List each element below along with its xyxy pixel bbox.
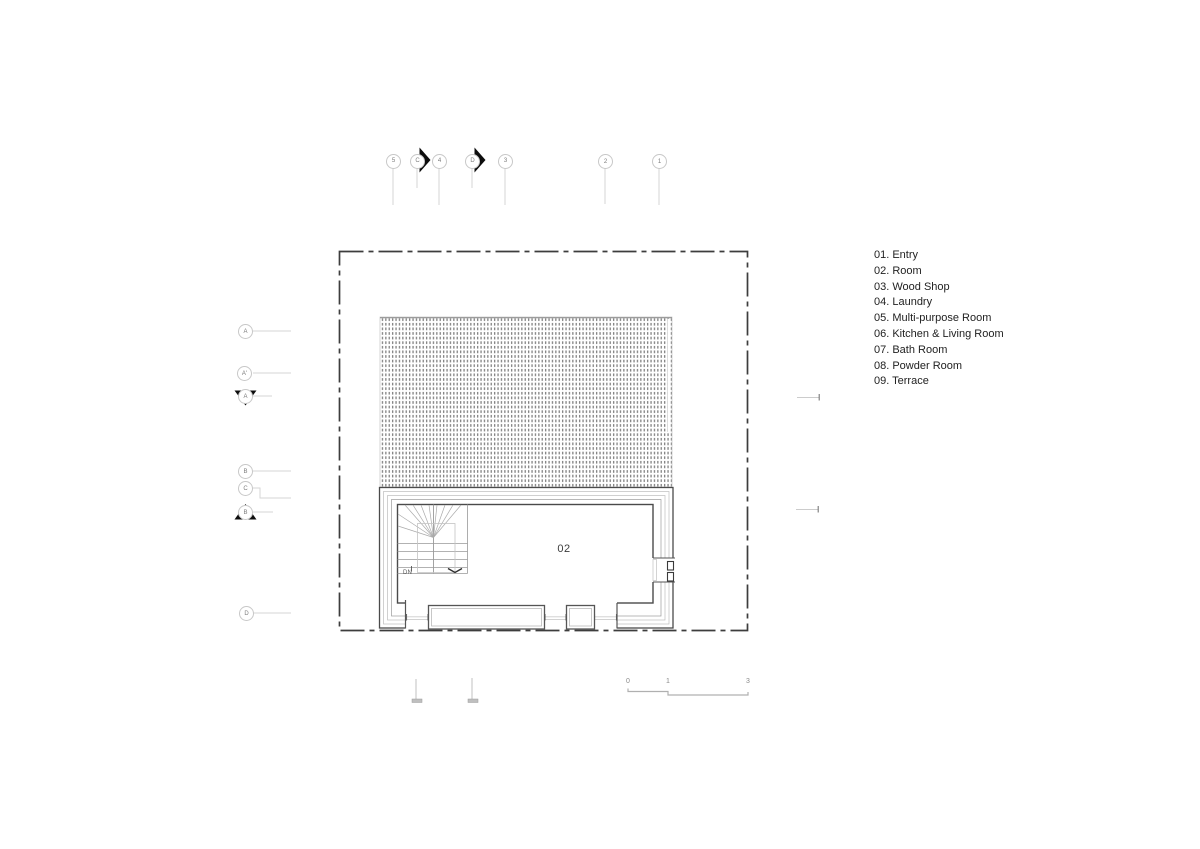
door-jamb-block — [668, 573, 674, 582]
scale-label-0: 0 — [623, 678, 633, 685]
grid-bubble-a-prime: A' — [237, 366, 252, 381]
grid-tails-left — [253, 331, 291, 613]
scale-bar-line — [628, 689, 748, 696]
grid-bubble-c: C — [410, 154, 425, 169]
grid-bubble-2: 2 — [598, 154, 613, 169]
grid-bubble-label: A' — [242, 371, 247, 377]
grid-bubble-label: 2 — [604, 159, 607, 165]
legend-item: 04. Laundry — [874, 295, 1004, 311]
grid-bubble-1: 1 — [652, 154, 667, 169]
grid-bubble-3: 3 — [498, 154, 513, 169]
scale-label-3: 3 — [743, 678, 753, 685]
grid-bubble-d-left: D — [239, 606, 254, 621]
stair-down-label: DN — [403, 570, 412, 576]
room-number-label: 02 — [550, 543, 578, 555]
grid-bubble-b: B — [238, 464, 253, 479]
room-legend: 01. Entry 02. Room 03. Wood Shop 04. Lau… — [874, 248, 1004, 390]
legend-item: 02. Room — [874, 264, 1004, 280]
grid-bubble-5: 5 — [386, 154, 401, 169]
downspout-marks — [412, 678, 478, 703]
legend-item: 08. Powder Room — [874, 359, 1004, 375]
grid-bubble-label: C — [243, 486, 247, 492]
window-bay-small — [567, 606, 595, 630]
grid-bubble-label: B — [243, 469, 247, 475]
grid-bubble-a: A — [238, 324, 253, 339]
bottom-window-wall — [406, 597, 618, 630]
grid-bubble-label: D — [470, 158, 474, 164]
roof-hatch-area — [380, 317, 672, 487]
grid-bubble-c-left: C — [238, 481, 253, 496]
grid-bubble-label: A — [243, 394, 247, 400]
scale-label-1: 1 — [663, 678, 673, 685]
grid-bubble-label: 4 — [438, 158, 441, 164]
legend-item: 07. Bath Room — [874, 343, 1004, 359]
legend-item: 05. Multi-purpose Room — [874, 311, 1004, 327]
right-grid-marks — [796, 394, 819, 513]
grid-bubble-label: B — [243, 510, 247, 516]
grid-bubble-label: 3 — [504, 158, 507, 164]
grid-bubble-a-section: A — [238, 389, 253, 404]
legend-item: 01. Entry — [874, 248, 1004, 264]
door-jamb-block — [668, 562, 674, 571]
grid-bubble-label: 1 — [658, 159, 661, 165]
grid-bubble-label: 5 — [392, 158, 395, 164]
legend-item: 09. Terrace — [874, 374, 1004, 390]
grid-bubble-4: 4 — [432, 154, 447, 169]
grid-bubble-label: A — [243, 329, 247, 335]
grid-bubble-d: D — [465, 154, 480, 169]
floor-plan-page: { "canvas": { "background": "#ffffff" },… — [0, 0, 1200, 849]
legend-item: 03. Wood Shop — [874, 280, 1004, 296]
grid-tails-top — [393, 168, 659, 205]
door-opening — [646, 558, 678, 582]
legend-item: 06. Kitchen & Living Room — [874, 327, 1004, 343]
grid-bubble-label: C — [415, 158, 419, 164]
grid-bubble-b-section: B — [238, 505, 253, 520]
grid-bubble-label: D — [244, 611, 248, 617]
window-bay-long — [429, 606, 545, 630]
floor-plan-drawing — [0, 0, 1200, 849]
